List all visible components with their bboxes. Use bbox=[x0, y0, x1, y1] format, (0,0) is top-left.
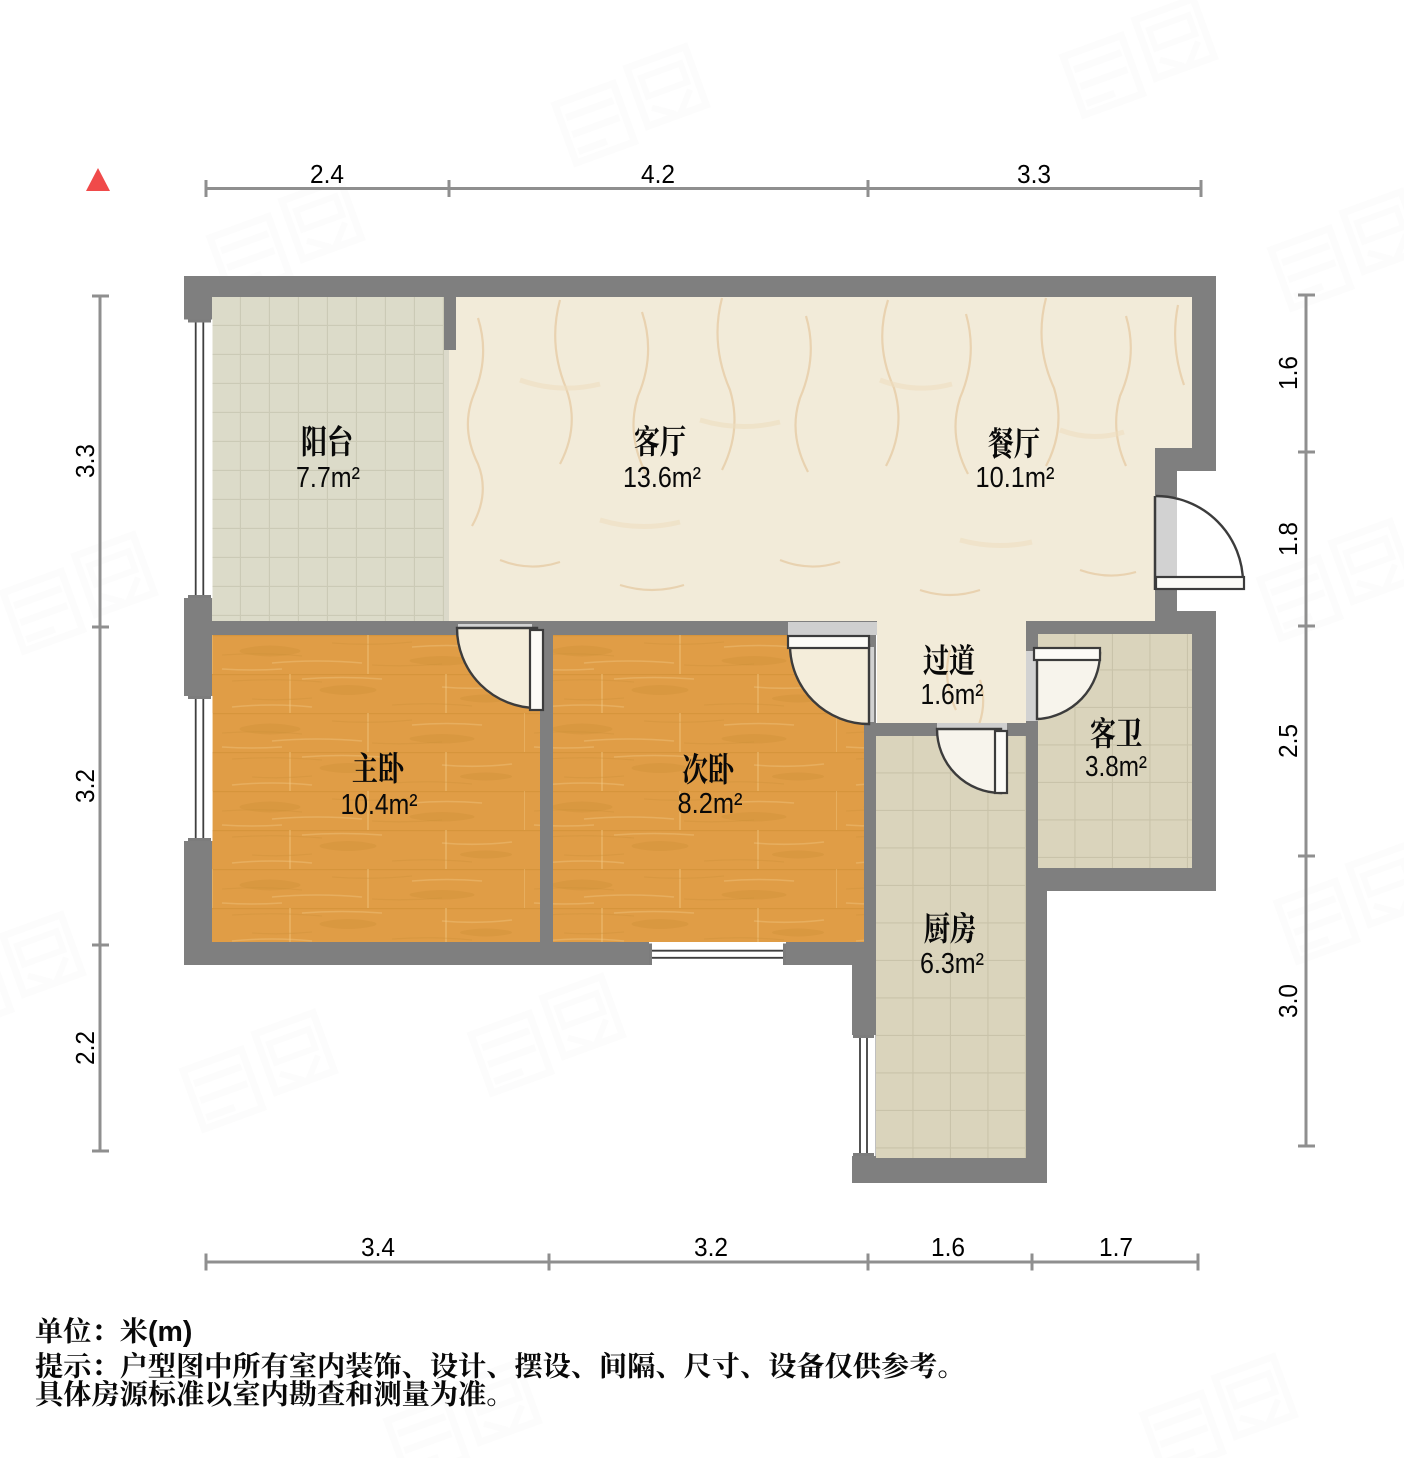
svg-text:13.6m²: 13.6m² bbox=[623, 462, 701, 494]
svg-text:10.1m²: 10.1m² bbox=[976, 462, 1055, 494]
svg-text:3.3: 3.3 bbox=[70, 444, 100, 478]
svg-text:2.2: 2.2 bbox=[70, 1031, 100, 1065]
svg-text:7.7m²: 7.7m² bbox=[296, 462, 360, 494]
svg-text:2.5: 2.5 bbox=[1273, 724, 1303, 758]
svg-text:10.4m²: 10.4m² bbox=[341, 789, 418, 821]
svg-text:8.2m²: 8.2m² bbox=[678, 788, 743, 820]
svg-text:6.3m²: 6.3m² bbox=[920, 948, 984, 980]
svg-text:3.8m²: 3.8m² bbox=[1085, 751, 1147, 783]
svg-text:3.0: 3.0 bbox=[1273, 984, 1303, 1018]
svg-text:3.2: 3.2 bbox=[694, 1232, 728, 1262]
svg-text:4.2: 4.2 bbox=[641, 159, 675, 189]
svg-text:1.6m²: 1.6m² bbox=[921, 679, 984, 711]
svg-text:1.6: 1.6 bbox=[931, 1232, 965, 1262]
svg-text:3.2: 3.2 bbox=[70, 769, 100, 803]
svg-text:2.4: 2.4 bbox=[310, 159, 344, 189]
svg-text:1.7: 1.7 bbox=[1099, 1232, 1133, 1262]
svg-text:3.4: 3.4 bbox=[361, 1232, 395, 1262]
svg-text:(m): (m) bbox=[148, 1316, 192, 1348]
svg-text:3.3: 3.3 bbox=[1017, 159, 1051, 189]
svg-text:1.8: 1.8 bbox=[1273, 522, 1303, 556]
svg-text:1.6: 1.6 bbox=[1273, 356, 1303, 390]
